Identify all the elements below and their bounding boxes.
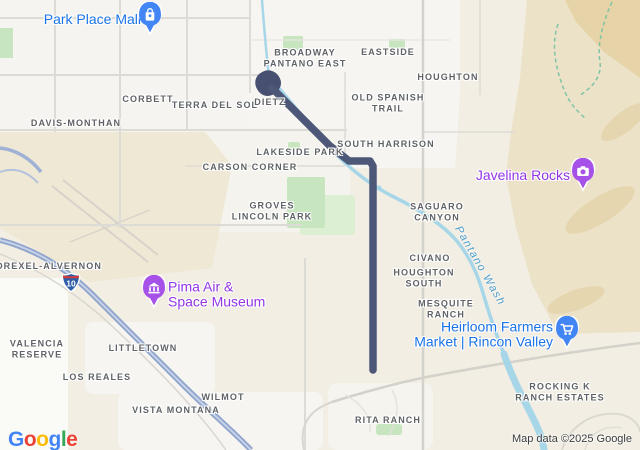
poi-label-pima-air-space-museum[interactable]: Pima Air &Space Museum [168,280,265,309]
area-label-vista-montana: VISTA MONTANA [132,405,220,416]
area-label-saguaro-canyon: SAGUAROCANYON [410,202,464,223]
map-attribution: Map data ©2025 Google [512,433,632,445]
poi-label-park-place-mall[interactable]: Park Place Mall [44,12,141,27]
area-label-broadway-pantano-east: BROADWAYPANTANO EAST [264,48,347,69]
area-label-eastside: EASTSIDE [361,47,415,58]
area-label-groves-lincoln-park: GROVESLINCOLN PARK [232,201,313,222]
area-label-terra-del-sol: TERRA DEL SOL [172,100,258,111]
area-label-civano: CIVANO [410,253,451,264]
area-label-wilmot: WILMOT [201,392,244,403]
area-label-littletown: LITTLETOWN [109,343,178,354]
javelina-rocks-pin[interactable] [570,158,596,192]
logo-letter: G [8,428,24,450]
area-label-houghton: HOUGHTON [417,72,478,83]
area-label-lakeside-park: LAKESIDE PARK [256,147,343,158]
interstate-10-shield: 10 [61,272,81,294]
area-label-drexel-alvernon: DREXEL-ALVERNON [0,261,102,272]
logo-letter: e [66,428,77,450]
area-label-rita-ranch: RITA RANCH [355,415,421,426]
area-label-south-harrison: SOUTH HARRISON [337,139,434,150]
area-label-davis-monthan: DAVIS-MONTHAN [31,118,121,129]
area-label-valencia-reserve: VALENCIARESERVE [10,339,64,360]
urban-zone-littletown [85,322,215,394]
park-place-mall-pin[interactable] [137,2,163,36]
area-label-dietz: DIETZ [254,97,286,108]
pima-air-space-museum-pin[interactable] [141,275,167,309]
logo-letter: o [36,428,48,450]
urban-zone-bottomleft [0,278,68,450]
poi-label-heirloom-farmers-market[interactable]: Heirloom FarmersMarket | Rincon Valley [414,320,553,349]
area-label-carson-corner: CARSON CORNER [203,162,298,173]
area-label-corbett: CORBETT [122,94,173,105]
heirloom-farmers-market-pin[interactable] [554,316,580,350]
area-label-old-spanish-trail: OLD SPANISHTRAIL [352,93,425,114]
logo-letter: o [24,428,36,450]
area-label-houghton-south: HOUGHTONSOUTH [393,268,454,289]
map-canvas[interactable]: CORBETT TERRA DEL SOL DIETZ DAVIS-MONTHA… [0,0,640,450]
logo-letter: g [49,428,61,450]
poi-label-javelina-rocks[interactable]: Javelina Rocks [476,168,570,183]
area-label-los-reales: LOS REALES [63,372,132,383]
area-label-rocking-k-ranch-estates: ROCKING KRANCH ESTATES [515,382,604,403]
area-label-mesquite-ranch: MESQUITERANCH [418,299,474,320]
google-logo[interactable]: Google [8,428,77,450]
svg-text:10: 10 [66,279,76,289]
